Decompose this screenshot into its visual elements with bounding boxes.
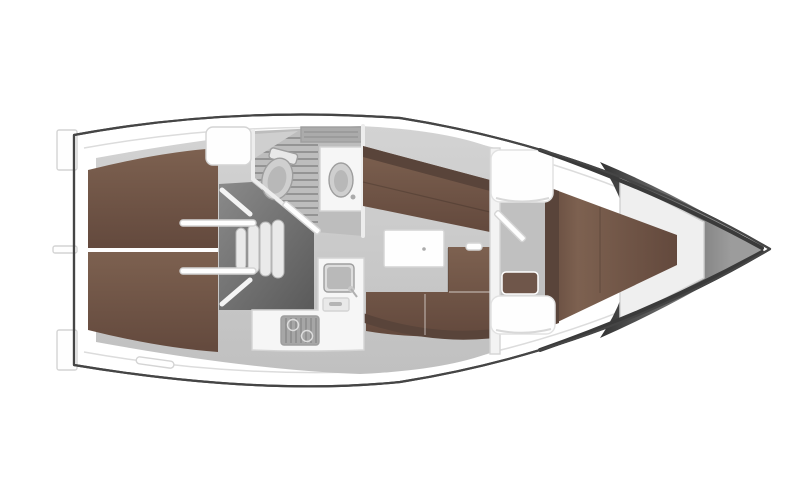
- step-3: [260, 222, 271, 276]
- companionway-rail-top: [180, 220, 256, 226]
- deck-hatch-fitting: [136, 356, 175, 368]
- table-fitting: [422, 247, 426, 251]
- saloon-table: [384, 230, 444, 267]
- bulkhead-seat-lower: [491, 296, 555, 334]
- companionway-hatch-seat: [206, 127, 251, 165]
- galley-sink-basin: [327, 267, 351, 289]
- head-sink-inner: [334, 170, 348, 192]
- yacht-floor-plan: [0, 0, 800, 500]
- head-top-cabinet: [301, 127, 362, 142]
- step-2: [248, 225, 259, 273]
- forward-cabin-bench: [502, 272, 538, 294]
- step-4: [272, 220, 284, 278]
- stove: [281, 316, 319, 345]
- boat-plan-canvas: [0, 0, 800, 500]
- step-1: [236, 228, 246, 270]
- head-faucet: [351, 195, 356, 200]
- aft-cabin-divider: [86, 248, 218, 252]
- door-knob: [466, 243, 482, 250]
- galley-drawer-handle: [329, 302, 342, 306]
- bulkhead-seat-upper: [491, 150, 553, 202]
- companionway-rail-bottom: [180, 268, 256, 274]
